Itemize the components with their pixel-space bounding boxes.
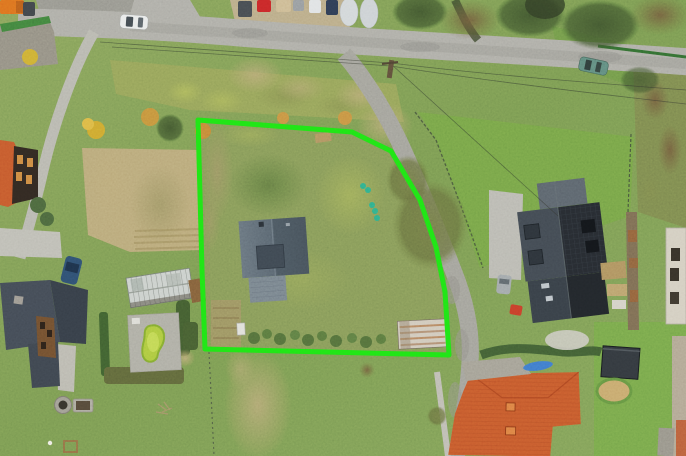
- photo-grain-overlay: [0, 0, 686, 456]
- aerial-photo: [0, 0, 686, 456]
